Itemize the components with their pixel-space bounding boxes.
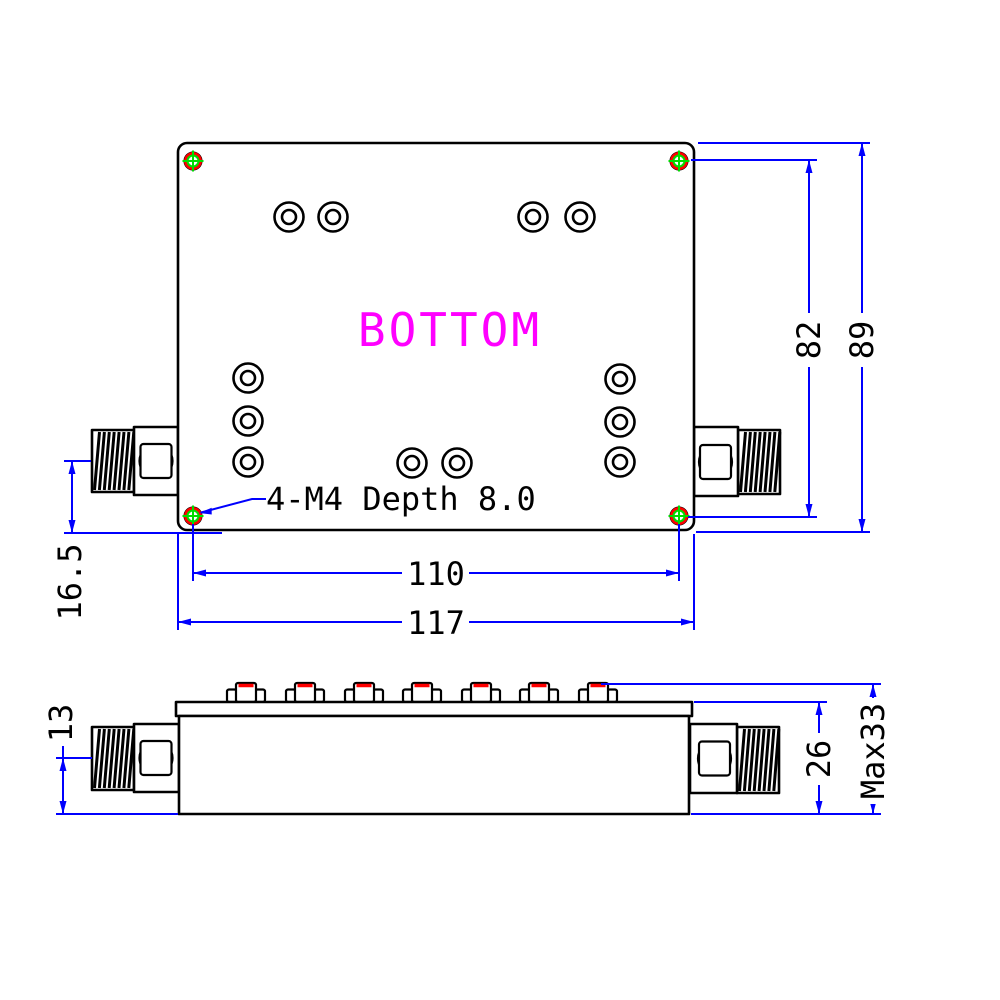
- dimension-text: 89: [843, 321, 881, 360]
- mounting-hole-icon: [566, 203, 595, 232]
- arrowhead-icon: [859, 143, 866, 156]
- arrowhead-icon: [69, 461, 76, 474]
- arrowhead-icon: [60, 801, 67, 814]
- drawing-canvas: BOTTOM 4-M4 Depth 8.0 110 117: [0, 0, 1000, 1000]
- arrowhead-icon: [816, 702, 823, 715]
- dimension-text: 16.5: [51, 543, 89, 620]
- housing-body: [179, 716, 689, 814]
- bottom-view: BOTTOM 4-M4 Depth 8.0 110 117: [51, 143, 881, 642]
- arrowhead-icon: [816, 801, 823, 814]
- mounting-hole-icon: [606, 408, 635, 437]
- arrowhead-icon: [666, 570, 679, 577]
- side-view: 13 26 Max33: [42, 683, 892, 814]
- cover-screw-icon: [462, 683, 500, 702]
- arrowhead-icon: [60, 758, 67, 771]
- arrowhead-icon: [870, 684, 877, 697]
- cover-screw-icon: [227, 683, 265, 702]
- cover-screw-icon: [286, 683, 324, 702]
- mounting-hole-icon: [398, 449, 427, 478]
- technical-drawing: BOTTOM 4-M4 Depth 8.0 110 117: [0, 0, 1000, 1000]
- arrowhead-icon: [859, 519, 866, 532]
- screw-note: 4-M4 Depth 8.0: [266, 480, 536, 518]
- mounting-hole-icon: [275, 203, 304, 232]
- rf-connector-right: [694, 427, 780, 496]
- mounting-hole-icon: [234, 448, 263, 477]
- arrowhead-icon: [806, 160, 813, 173]
- mounting-hole-icon: [234, 407, 263, 436]
- arrowhead-icon: [681, 619, 694, 626]
- cover-screw-icon: [345, 683, 383, 702]
- cover-screw-icon: [520, 683, 558, 702]
- dimension-text: 13: [42, 704, 80, 743]
- dimension-text: 110: [407, 555, 465, 593]
- mounting-hole-icon: [319, 203, 348, 232]
- arrowhead-icon: [193, 570, 206, 577]
- mounting-hole-icon: [443, 449, 472, 478]
- mounting-hole-icon: [519, 203, 548, 232]
- cover-plate: [176, 702, 692, 716]
- cover-screw-icon: [403, 683, 441, 702]
- mounting-hole-icon: [606, 365, 635, 394]
- dimension-text: 26: [800, 740, 838, 779]
- dimension-text: Max33: [854, 703, 892, 799]
- mounting-hole-icon: [606, 448, 635, 477]
- dimension-110: 110: [193, 524, 679, 593]
- connector-recess: [141, 444, 172, 478]
- connector-recess: [141, 741, 172, 775]
- view-label: BOTTOM: [358, 303, 542, 357]
- cover-screw-icon: [579, 683, 617, 702]
- rf-connector-left: [92, 427, 178, 495]
- arrowhead-icon: [69, 520, 76, 533]
- arrowhead-icon: [806, 504, 813, 517]
- rf-connector-left: [92, 724, 179, 792]
- connector-recess: [699, 742, 730, 776]
- rf-connector-right: [690, 724, 779, 793]
- mounting-hole-icon: [234, 364, 263, 393]
- arrowhead-icon: [178, 619, 191, 626]
- dimension-text: 82: [790, 321, 828, 360]
- dimension-text: 117: [407, 604, 465, 642]
- connector-recess: [700, 445, 731, 479]
